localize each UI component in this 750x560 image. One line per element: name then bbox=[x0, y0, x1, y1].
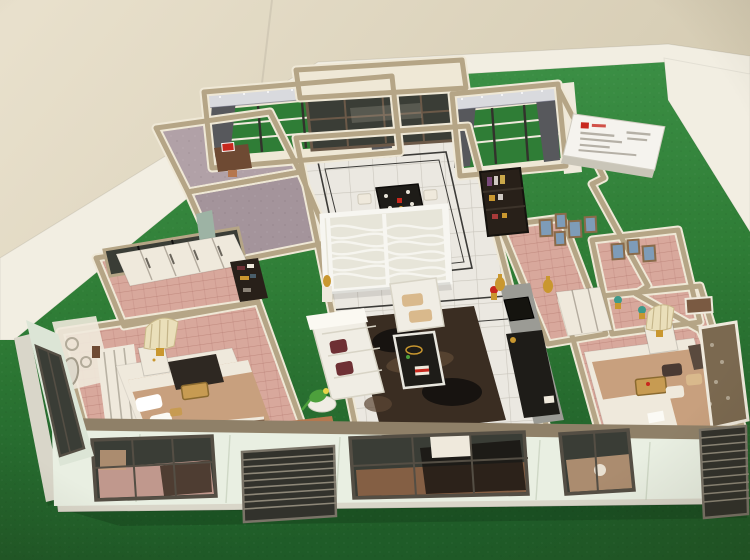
vignette-overlay bbox=[0, 0, 750, 560]
model-photo-canvas bbox=[0, 0, 750, 560]
model-photograph bbox=[0, 0, 750, 560]
